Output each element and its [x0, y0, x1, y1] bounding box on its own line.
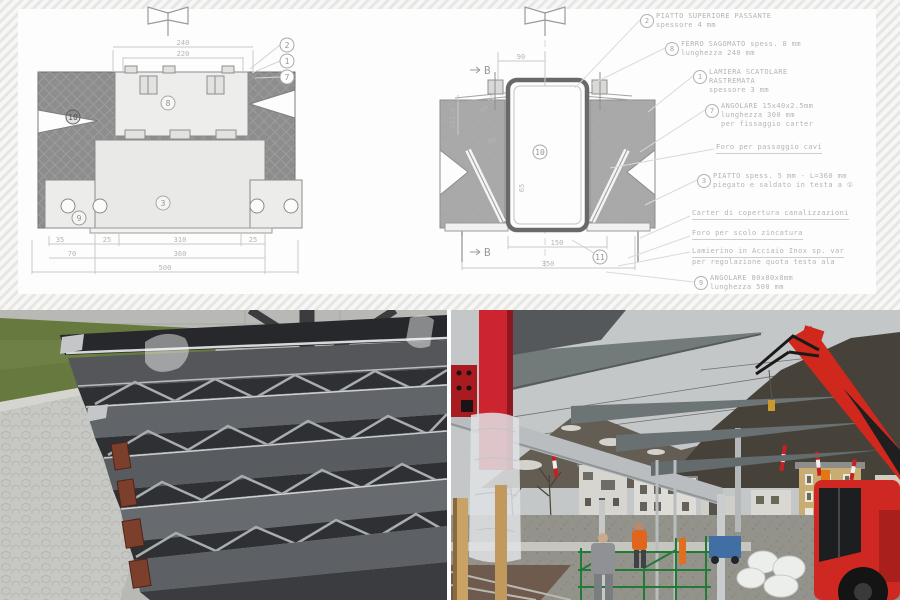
callout-badge: 3: [697, 174, 711, 188]
svg-text:8: 8: [166, 99, 171, 108]
svg-text:350: 350: [542, 260, 555, 268]
photo-strip: [0, 310, 900, 600]
annotation-item: Carter di copertura canalizzazioni: [692, 209, 849, 220]
annotation-item: PIATTO spess. 5 mm - L=360 mmpiegato e s…: [713, 172, 854, 190]
svg-text:25: 25: [249, 236, 257, 244]
svg-text:240: 240: [177, 39, 190, 47]
svg-text:162.6: 162.6: [449, 107, 457, 128]
svg-text:11: 11: [595, 253, 605, 262]
svg-text:2: 2: [285, 41, 290, 50]
svg-text:9: 9: [77, 214, 82, 223]
wood-batten: [495, 485, 507, 600]
callout-badge: 9: [694, 276, 708, 290]
box-section: [508, 80, 587, 230]
svg-text:10: 10: [68, 113, 78, 122]
svg-text:1: 1: [285, 57, 290, 66]
orange-post: [679, 538, 686, 564]
annotation-item: ANGOLARE 80x80x8mmlunghezza 500 mm: [710, 274, 793, 292]
photo-stacked-beams: [0, 310, 447, 600]
callout-badge: 2: [640, 14, 654, 28]
svg-text:25: 25: [103, 236, 111, 244]
technical-drawing-panel: 2 1 7 8 3 9 10 240 220: [0, 0, 900, 310]
svg-text:7: 7: [285, 73, 290, 82]
page: 2 1 7 8 3 9 10 240 220: [0, 0, 900, 600]
svg-text:B: B: [484, 64, 491, 77]
centerline-flag-icon: [525, 7, 565, 36]
right-section-view: B B 10 11 90 9: [440, 7, 655, 270]
site-machine: [709, 536, 741, 558]
svg-text:B: B: [484, 246, 491, 259]
crane-hook: [768, 400, 775, 411]
callout-badge: 8: [665, 42, 679, 56]
svg-text:80: 80: [488, 137, 496, 145]
annotation-item: LAMIERA SCATOLARERASTREMATAspessore 3 mm: [709, 68, 787, 95]
annotation-item: Foro per passaggio cavi: [716, 143, 822, 154]
svg-text:310: 310: [174, 236, 187, 244]
svg-text:35: 35: [56, 236, 64, 244]
callout-badge: 7: [705, 104, 719, 118]
left-section-view: 2 1 7 8 3 9 10 240 220: [32, 7, 302, 274]
centerline-flag-icon: [148, 7, 188, 36]
svg-text:65: 65: [518, 184, 526, 192]
annotation-item: ANGOLARE 15x40x2.5mmlunghezza 300 mmper …: [721, 102, 813, 129]
svg-text:150: 150: [551, 239, 564, 247]
svg-text:70: 70: [68, 250, 76, 258]
photo-construction-site: [451, 310, 900, 600]
svg-text:500: 500: [159, 264, 172, 272]
construction-site-scene: [451, 310, 900, 600]
svg-text:90: 90: [517, 53, 525, 61]
stacked-beams-scene: [0, 310, 447, 600]
svg-text:360: 360: [174, 250, 187, 258]
catenary-mast: [735, 428, 741, 532]
svg-text:220: 220: [177, 50, 190, 58]
annotation-item: Lamierino in Acciaio Inox sp. varper reg…: [692, 247, 844, 267]
annotation-item: Foro per scolo zincatura: [692, 229, 803, 240]
annotation-item: PIATTO SUPERIORE PASSANTEspessore 4 mm: [656, 12, 771, 30]
telehandler-cab: [814, 470, 900, 600]
callout-badge: 1: [693, 70, 707, 84]
svg-text:3: 3: [161, 199, 166, 208]
svg-text:10: 10: [535, 148, 545, 157]
annotation-item: FERRO SAGOMATO spess. 8 mmlunghezza 240 …: [681, 40, 801, 58]
beacon-light: [821, 470, 830, 480]
